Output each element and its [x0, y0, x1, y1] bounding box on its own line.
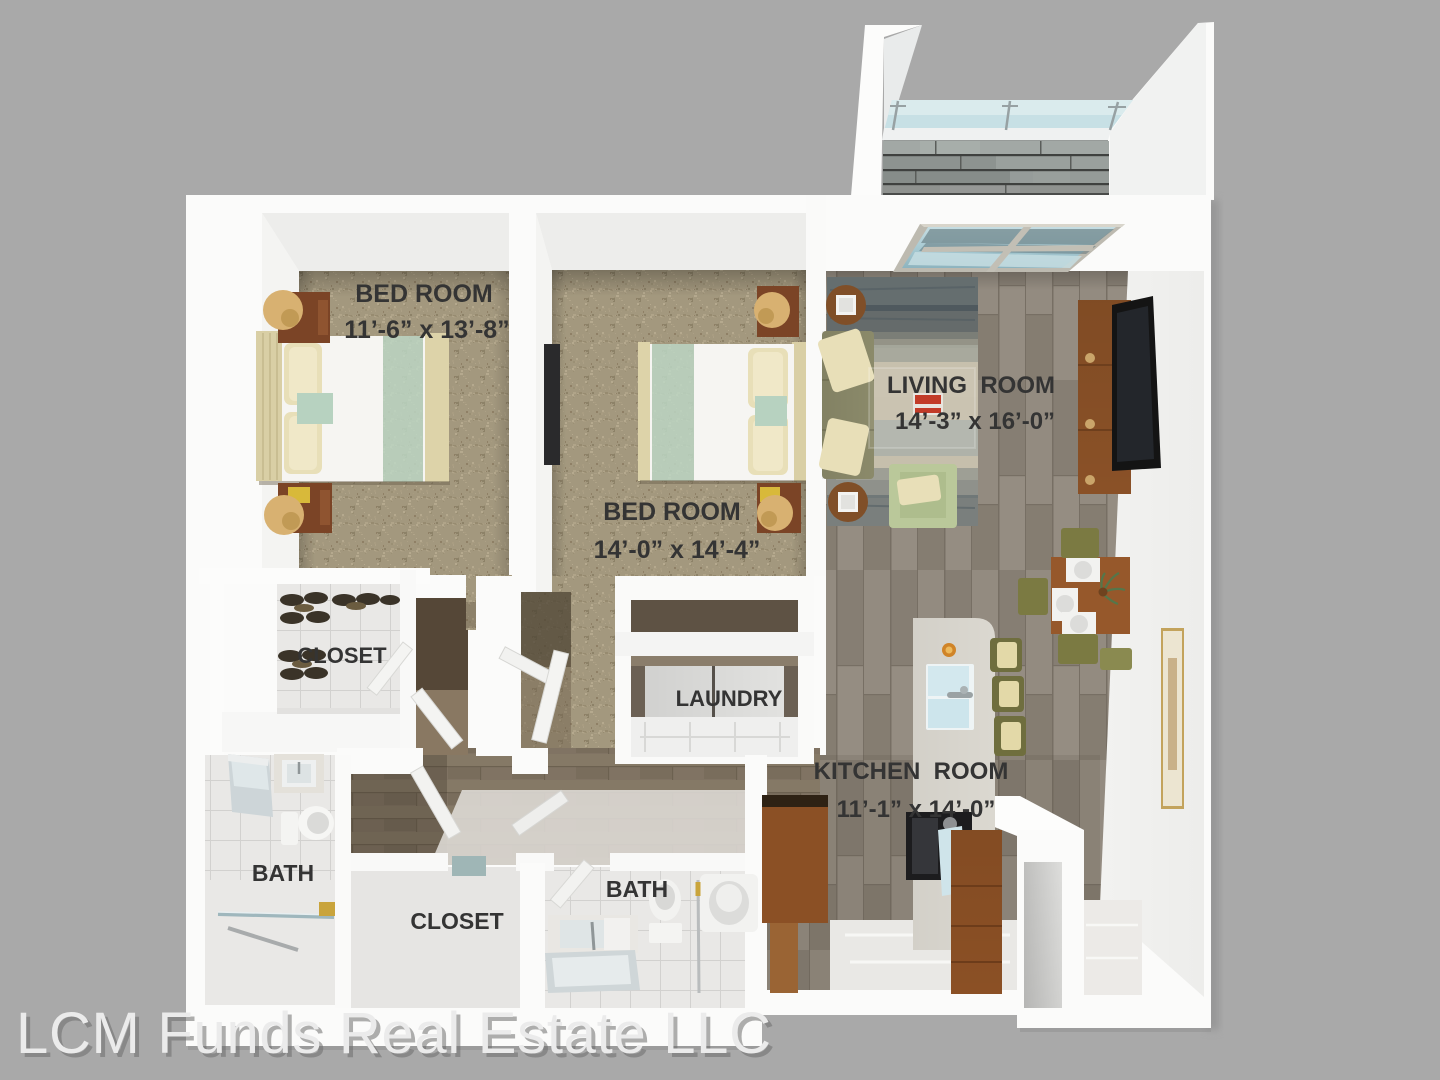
svg-text:CLOSET: CLOSET [297, 643, 387, 668]
svg-text:11’-6” x 13’-8”: 11’-6” x 13’-8” [344, 316, 509, 344]
svg-text:11’-1” x 14’-0”: 11’-1” x 14’-0” [837, 796, 996, 823]
svg-text:BED ROOM: BED ROOM [355, 280, 493, 308]
svg-text:LCM Funds Real Estate LLC: LCM Funds Real Estate LLC [16, 1001, 772, 1066]
svg-text:BED ROOM: BED ROOM [603, 498, 741, 526]
svg-text:LAUNDRY: LAUNDRY [676, 686, 783, 711]
svg-text:CLOSET: CLOSET [410, 908, 503, 934]
svg-text:BATH: BATH [252, 860, 314, 886]
svg-text:LIVING ROOM: LIVING ROOM [887, 372, 1055, 399]
svg-text:BATH: BATH [606, 876, 668, 902]
svg-text:KITCHEN ROOM: KITCHEN ROOM [814, 758, 1009, 785]
svg-text:14’-3” x 16’-0”: 14’-3” x 16’-0” [895, 408, 1055, 435]
svg-text:14’-0” x 14’-4”: 14’-0” x 14’-4” [594, 536, 761, 564]
